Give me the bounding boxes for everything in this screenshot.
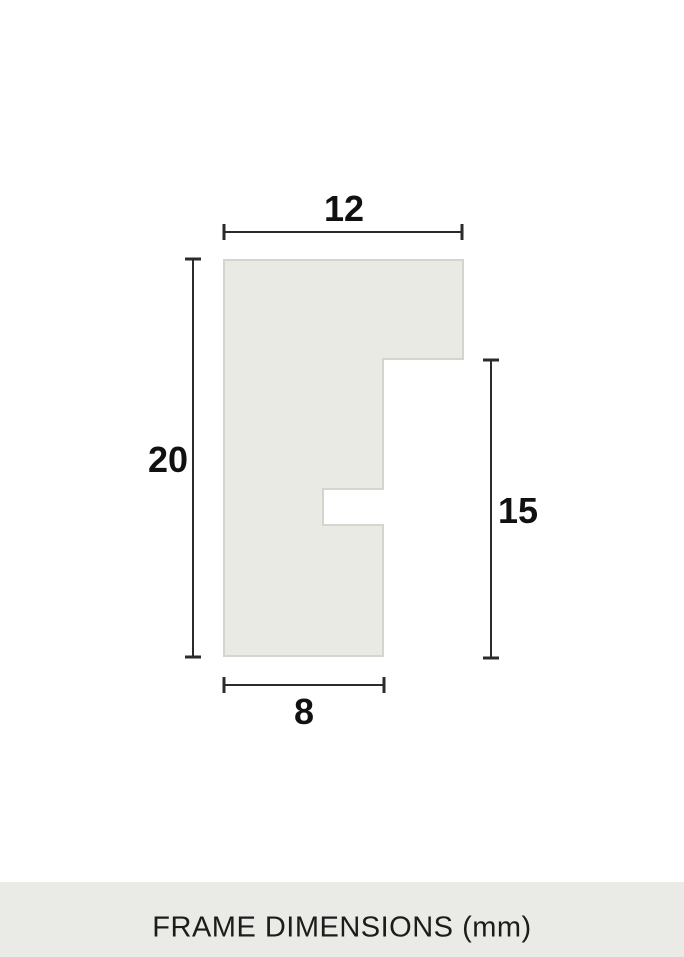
footer-band: FRAME DIMENSIONS (mm)	[0, 882, 684, 957]
dimension-label-left-height: 20	[148, 442, 188, 478]
dimension-label-bottom-width: 8	[294, 694, 314, 730]
dimension-line-right-height	[483, 360, 499, 658]
frame-profile-shape	[224, 260, 463, 656]
dimension-label-right-height: 15	[498, 493, 538, 529]
frame-dimensions-diagram: 12 20 15 8 FRAME DIMENSIONS (mm)	[0, 0, 684, 957]
dimension-label-top-width: 12	[324, 191, 364, 227]
frame-dimensions-caption: FRAME DIMENSIONS (mm)	[152, 912, 531, 945]
diagram-canvas	[0, 0, 684, 957]
